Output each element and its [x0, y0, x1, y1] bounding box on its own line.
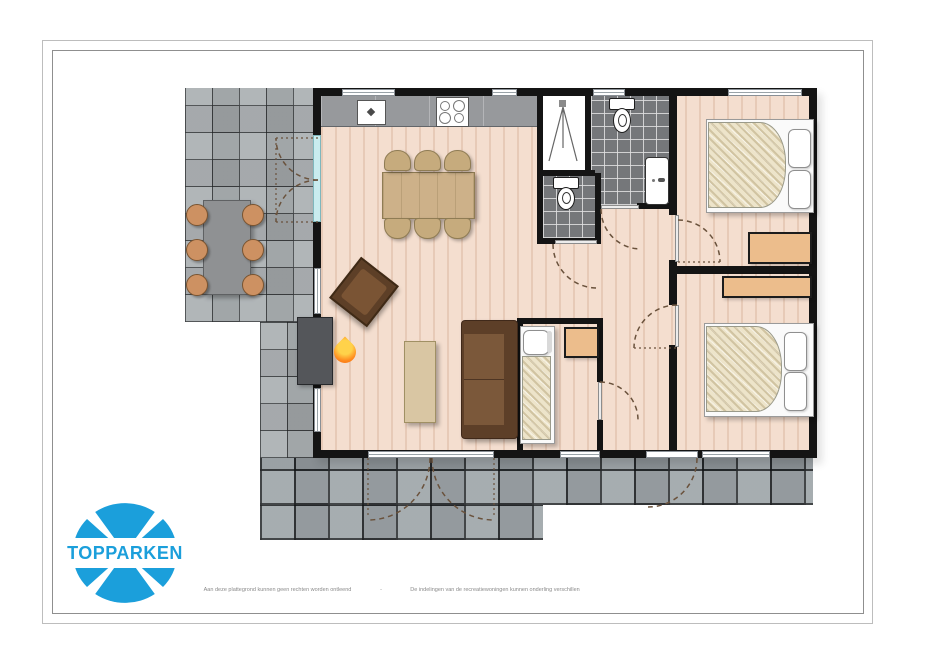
logo-text: TOPPARKEN	[57, 543, 193, 564]
footer-note-left: Aan deze plattegrond kunnen geen rechten…	[180, 585, 375, 595]
shower-icon	[549, 100, 577, 161]
footer-separator: -	[373, 585, 389, 595]
floorplan-page: TOPPARKEN Aan deze plattegrond kunnen ge…	[0, 0, 940, 666]
footer-note-right: De indelingen van de recreatiewoningen k…	[390, 585, 600, 595]
